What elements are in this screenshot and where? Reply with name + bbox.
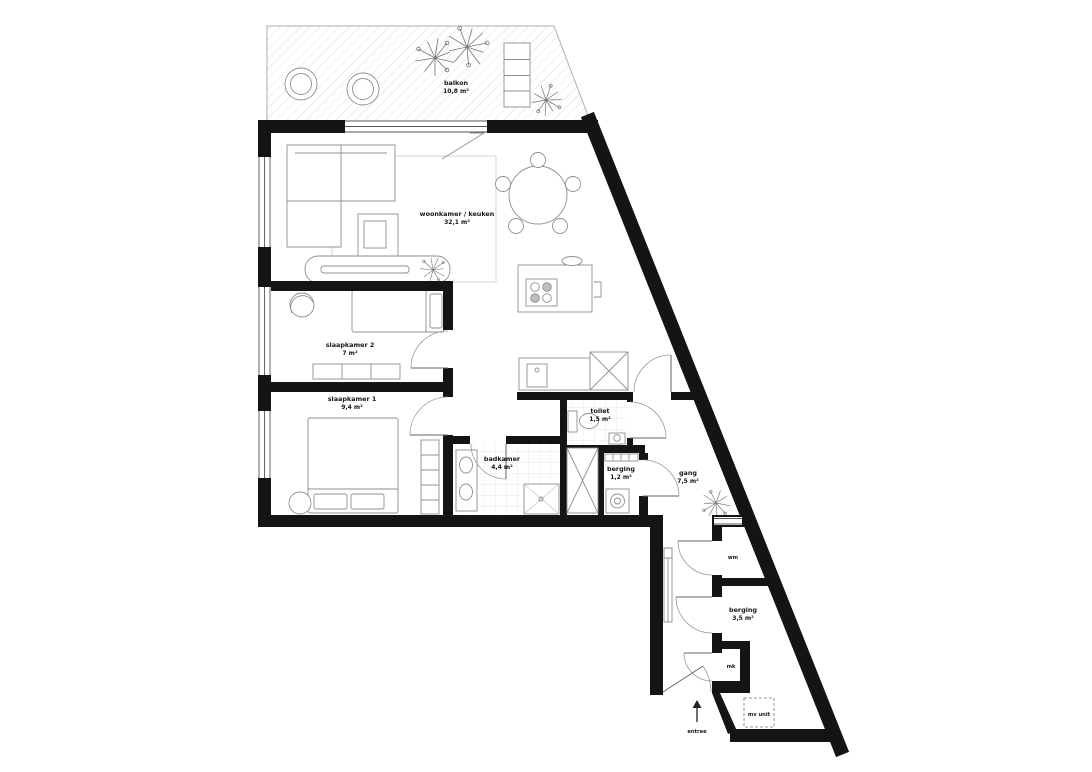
dining-table xyxy=(496,153,581,234)
label-wm: wm xyxy=(728,555,738,561)
hand-basin xyxy=(609,433,625,444)
kitchen-counter xyxy=(519,358,590,390)
room-area-slaapkamer-1: 9,4 m² xyxy=(341,404,363,411)
room-label-balkon: balkon xyxy=(444,79,469,87)
door-meter-cupboard xyxy=(684,653,712,681)
shelf xyxy=(605,454,638,461)
room-area-gang: 7,5 m² xyxy=(677,478,699,485)
meter-cupboard-door-gap xyxy=(712,653,722,681)
armchair xyxy=(290,293,314,317)
double-bed xyxy=(308,418,398,513)
floor-plan-page: balkon 10,8 m² woonkamer / keuken 32,1 m… xyxy=(0,0,1092,772)
room-label-toilet: toilet xyxy=(590,407,609,415)
floor-plan-drawing: balkon 10,8 m² woonkamer / keuken 32,1 m… xyxy=(0,0,1092,772)
room-area-berging-klein: 1,2 m² xyxy=(610,474,632,481)
room-label-slaapkamer-1: slaapkamer 1 xyxy=(328,395,377,403)
door-bedroom-2 xyxy=(411,331,448,368)
room-label-woonkamer: woonkamer / keuken xyxy=(420,210,495,218)
pouf xyxy=(289,492,311,514)
bedroom-2-furniture xyxy=(290,290,444,379)
balcony-lounge-chair-1 xyxy=(285,68,317,100)
window-bedroom-1 xyxy=(258,411,271,478)
washbasin-vanity xyxy=(456,450,477,511)
radiator xyxy=(664,548,672,622)
door-entrance xyxy=(663,666,711,692)
washing-machine xyxy=(606,489,629,513)
room-label-slaapkamer-2: slaapkamer 2 xyxy=(326,341,375,349)
room-label-badkamer: badkamer xyxy=(484,455,521,463)
single-bed xyxy=(352,290,444,332)
door-toilet xyxy=(630,402,666,438)
door-balcony-leaf xyxy=(442,133,484,159)
balcony-lounge-chair-2 xyxy=(347,73,379,105)
room-area-slaapkamer-2: 7 m² xyxy=(342,350,358,357)
label-mk: mk xyxy=(727,664,736,670)
kitchen-island xyxy=(518,257,601,313)
room-area-badkamer: 4,4 m² xyxy=(491,464,513,471)
balcony xyxy=(267,18,590,121)
entrance-arrowhead-icon xyxy=(693,700,702,708)
door-bedroom-1 xyxy=(410,397,448,435)
living-room-furniture xyxy=(287,145,628,390)
storage-room-fixtures xyxy=(605,454,638,513)
room-area-berging-groot: 3,5 m² xyxy=(732,615,754,622)
bedroom-1-furniture xyxy=(289,418,439,514)
coffee-table xyxy=(358,214,398,258)
room-area-toilet: 1,5 m² xyxy=(589,416,611,423)
door-storage-small xyxy=(643,460,679,496)
room-area-balkon: 10,8 m² xyxy=(443,88,469,95)
hall-closed-door xyxy=(714,517,742,525)
window-bedroom-2 xyxy=(258,287,271,375)
window-living xyxy=(258,157,271,247)
door-storage-large xyxy=(676,597,712,633)
entrance-label: entree xyxy=(687,729,707,735)
room-area-woonkamer: 32,1 m² xyxy=(444,219,470,226)
room-label-berging-groot: berging xyxy=(729,606,757,614)
shower xyxy=(524,484,559,514)
entrance-indicator: entree xyxy=(687,700,707,735)
door-living-hall xyxy=(634,355,671,392)
built-in-closet xyxy=(567,448,598,513)
label-mv-unit: mv unit xyxy=(748,712,771,718)
balcony-sliding-door xyxy=(345,120,487,133)
door-wm-closet xyxy=(678,541,712,575)
tall-cabinet xyxy=(590,352,628,390)
balcony-bench xyxy=(504,43,530,107)
wardrobe xyxy=(421,440,439,514)
room-label-gang: gang xyxy=(679,469,697,477)
room-label-berging-klein: berging xyxy=(607,465,635,473)
dresser xyxy=(313,364,400,379)
